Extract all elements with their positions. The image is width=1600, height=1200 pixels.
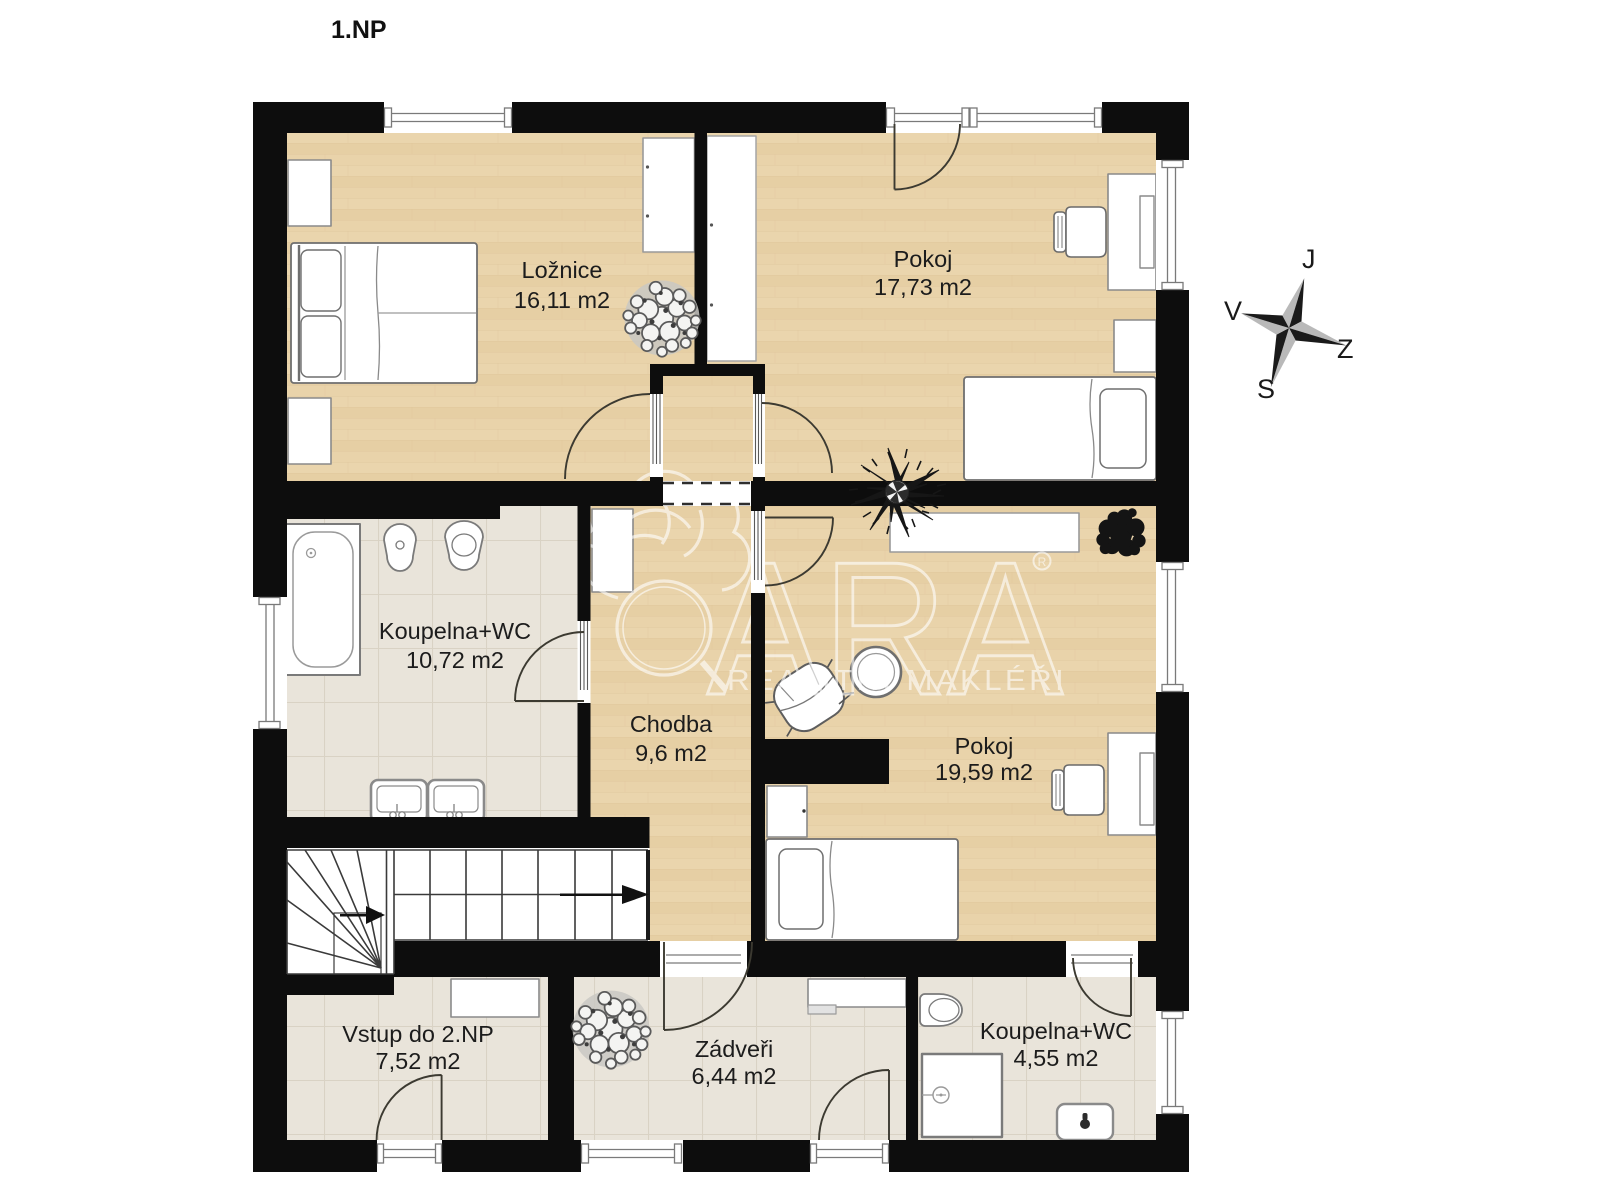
svg-text:Pokoj: Pokoj — [894, 246, 953, 272]
svg-text:17,73 m2: 17,73 m2 — [874, 274, 972, 300]
svg-text:Vstup do 2.NP: Vstup do 2.NP — [342, 1021, 494, 1047]
svg-text:S: S — [1257, 374, 1275, 404]
svg-text:Z: Z — [1337, 334, 1354, 364]
svg-text:10,72 m2: 10,72 m2 — [406, 647, 504, 673]
svg-text:9,6 m2: 9,6 m2 — [635, 740, 707, 766]
svg-text:7,52 m2: 7,52 m2 — [376, 1048, 461, 1074]
svg-text:19,59 m2: 19,59 m2 — [935, 759, 1033, 785]
svg-text:Chodba: Chodba — [630, 711, 713, 737]
svg-text:1.NP: 1.NP — [331, 16, 387, 44]
svg-text:16,11 m2: 16,11 m2 — [514, 287, 610, 313]
svg-text:4,55 m2: 4,55 m2 — [1014, 1045, 1099, 1071]
svg-text:Pokoj: Pokoj — [955, 733, 1014, 759]
svg-text:Koupelna+WC: Koupelna+WC — [379, 618, 531, 644]
svg-text:Ložnice: Ložnice — [522, 257, 603, 283]
svg-text:Koupelna+WC: Koupelna+WC — [980, 1018, 1132, 1044]
svg-text:V: V — [1224, 296, 1242, 326]
svg-text:R: R — [1038, 555, 1047, 569]
svg-text:6,44 m2: 6,44 m2 — [692, 1063, 777, 1089]
svg-text:Zádveři: Zádveři — [695, 1036, 773, 1062]
svg-text:REALITNÍ MAKLÉŘI: REALITNÍ MAKLÉŘI — [727, 664, 1067, 697]
svg-text:J: J — [1302, 244, 1316, 274]
